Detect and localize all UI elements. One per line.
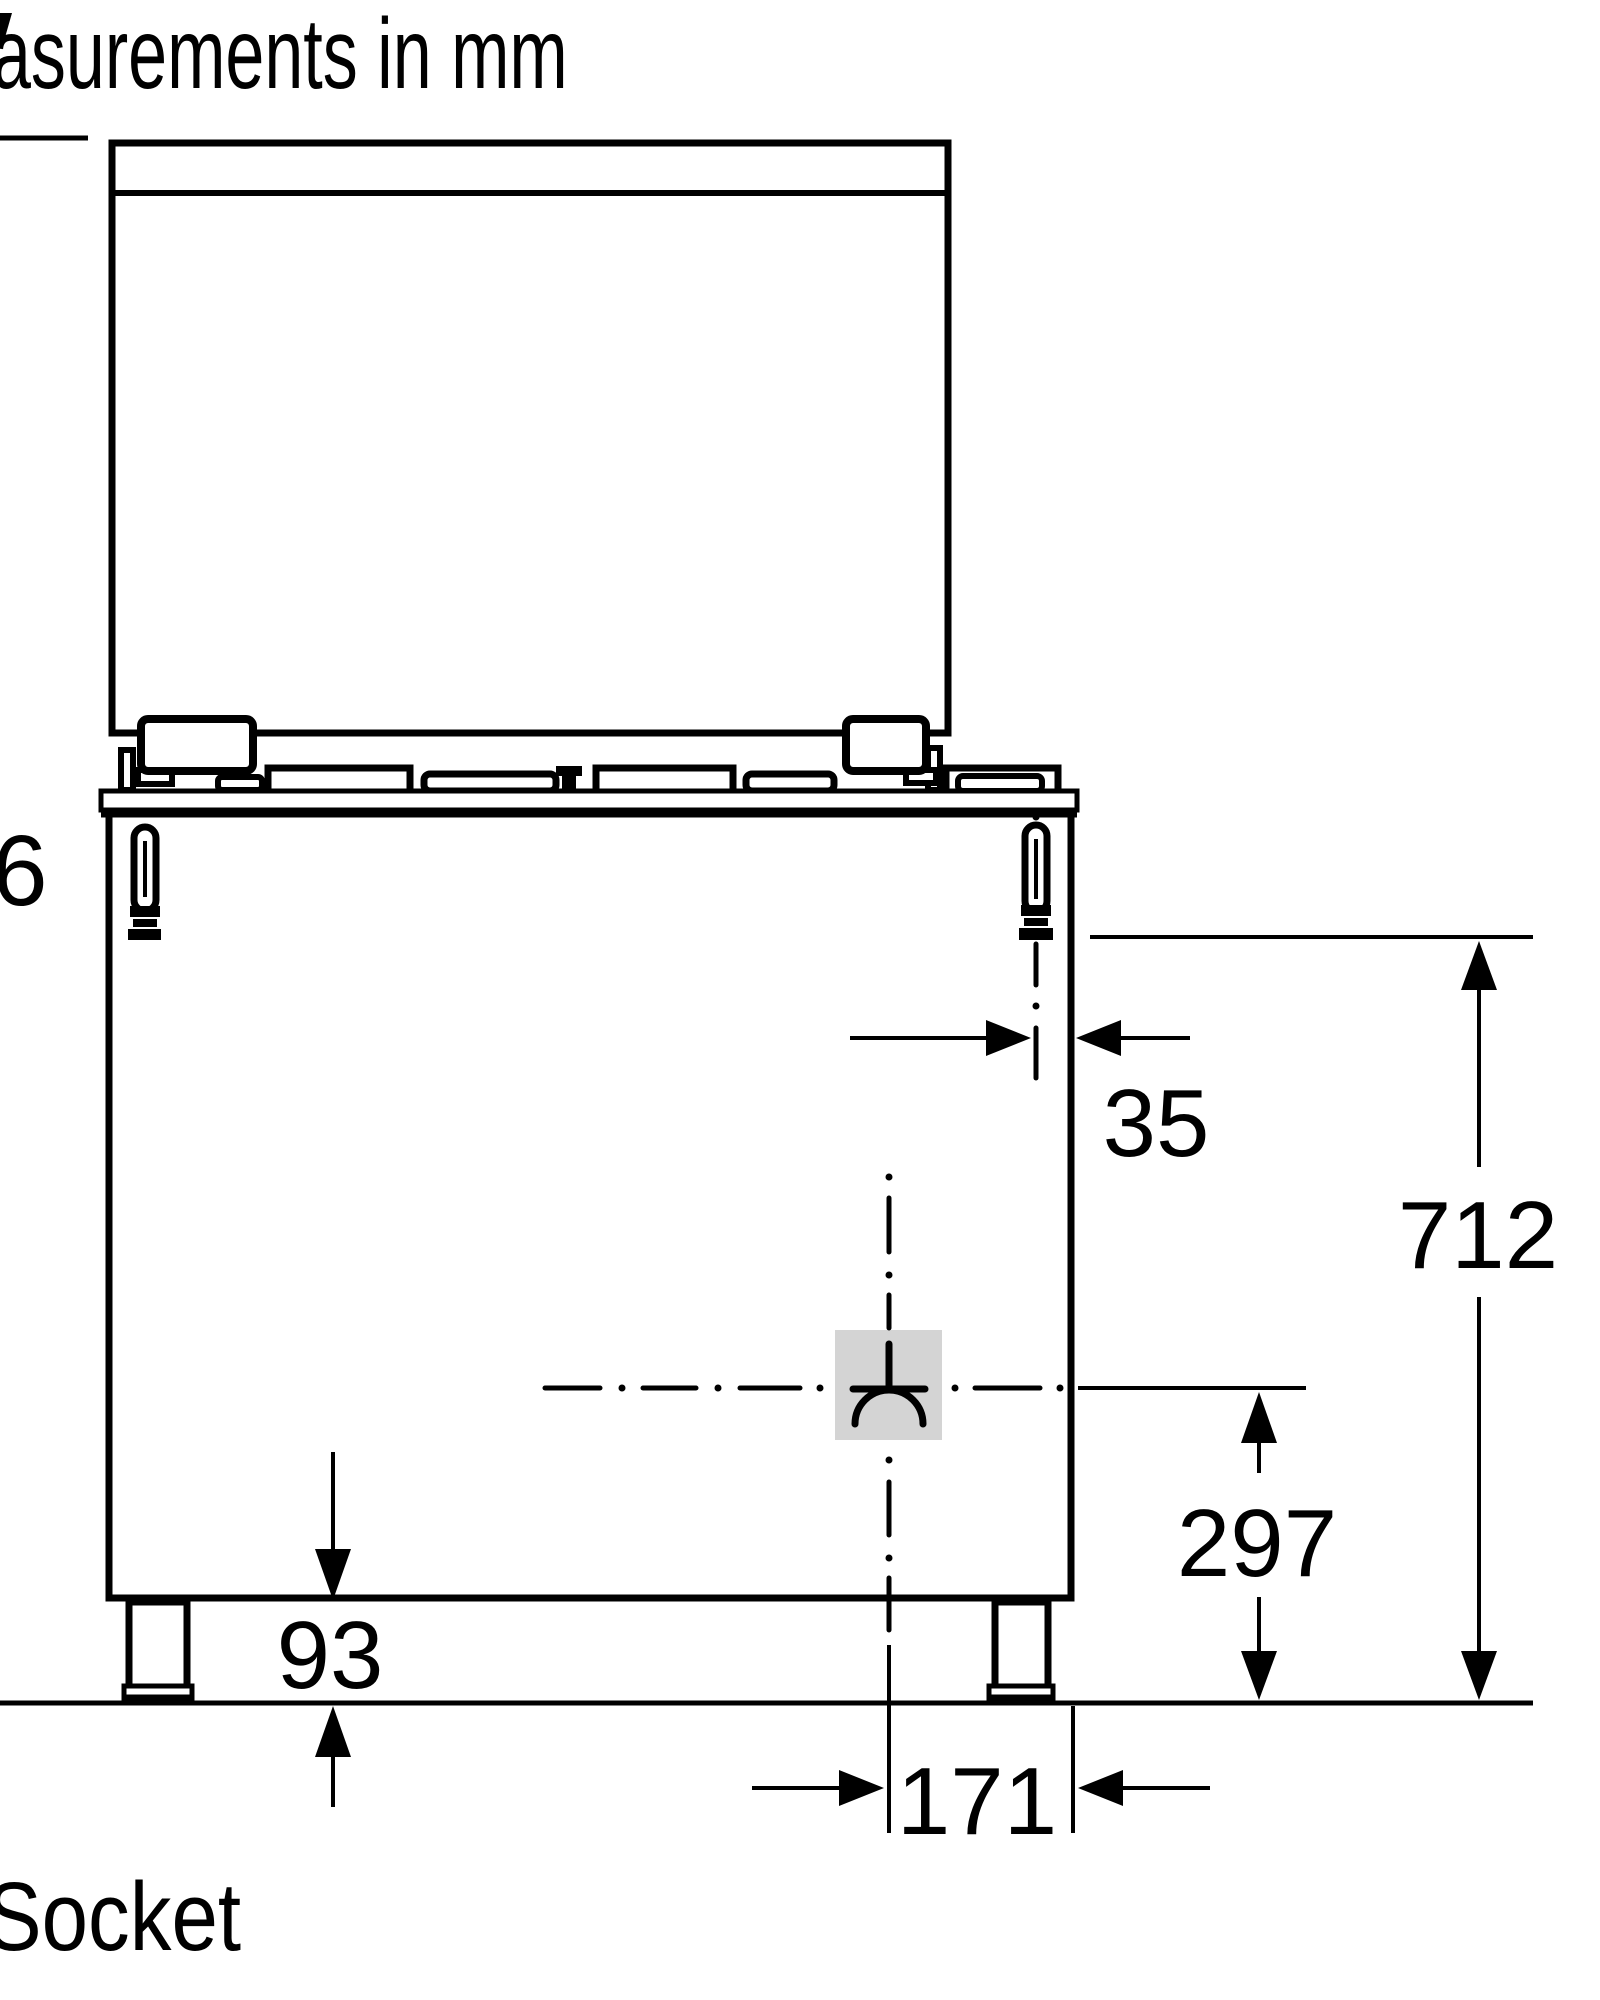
dim-value-gas-height: 712 bbox=[1398, 1188, 1558, 1284]
gas-pipe-left bbox=[128, 827, 161, 940]
dim-value-leg-height: 93 bbox=[277, 1608, 384, 1704]
page-title: asurements in mm bbox=[0, 4, 568, 104]
dim-value-socket-height: 297 bbox=[1177, 1496, 1337, 1592]
socket-centerlines bbox=[545, 1174, 1064, 1631]
cutoff-left-dimension-value: 6 bbox=[0, 821, 48, 921]
gas-pipe-right bbox=[1019, 825, 1053, 940]
lid-panel bbox=[110, 143, 948, 733]
legs bbox=[122, 1602, 1055, 1699]
dimension-drawing bbox=[0, 0, 1600, 2000]
cooktop-band bbox=[101, 791, 1077, 813]
dim-value-socket-offset: 171 bbox=[897, 1754, 1057, 1850]
socket-label: Socket bbox=[0, 1868, 241, 1965]
dim-value-gas-offset: 35 bbox=[1103, 1076, 1210, 1172]
installation-diagram-page: asurements in mm 6 35 712 297 93 171 Soc… bbox=[0, 0, 1600, 2000]
socket-marker bbox=[835, 1330, 942, 1440]
appliance-body bbox=[109, 815, 1071, 1598]
dim-35 bbox=[850, 1020, 1190, 1056]
